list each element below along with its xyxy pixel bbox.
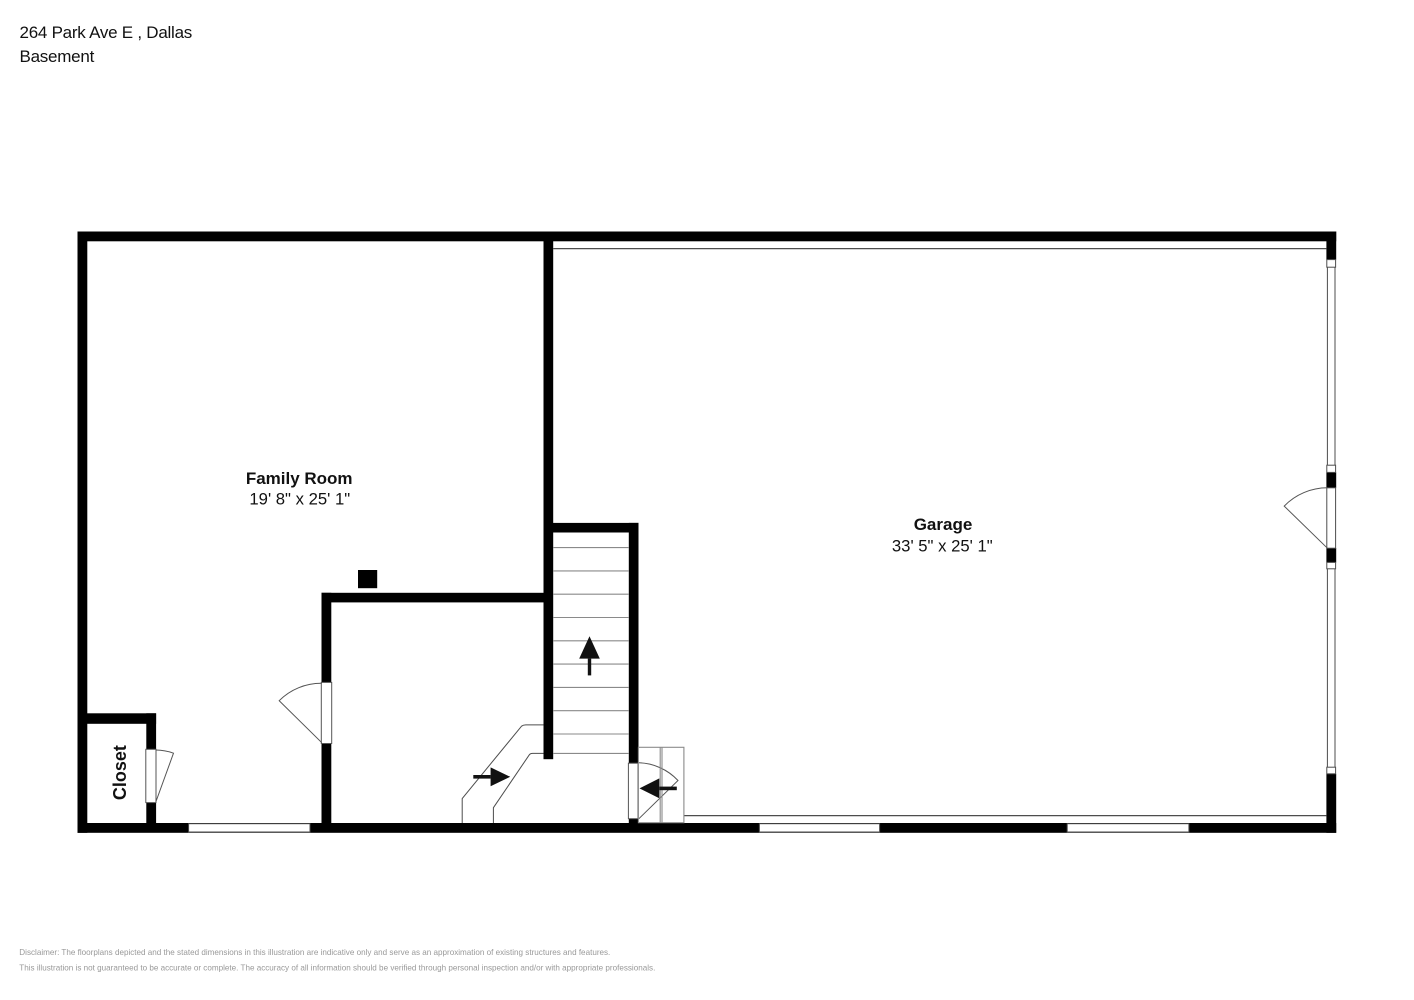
svg-text:264 Park Ave E , Dallas: 264 Park Ave E , Dallas — [20, 23, 193, 42]
svg-text:Disclaimer: The floorplans dep: Disclaimer: The floorplans depicted and … — [19, 948, 610, 957]
svg-text:Closet: Closet — [110, 745, 130, 800]
svg-text:Family Room: Family Room — [246, 469, 353, 488]
svg-text:Garage: Garage — [914, 515, 973, 534]
svg-text:Basement: Basement — [20, 47, 95, 66]
svg-text:This illustration is not guara: This illustration is not guaranteed to b… — [19, 963, 655, 972]
svg-text:19' 8" x 25' 1": 19' 8" x 25' 1" — [249, 490, 350, 509]
svg-text:33' 5" x 25' 1": 33' 5" x 25' 1" — [892, 537, 993, 556]
